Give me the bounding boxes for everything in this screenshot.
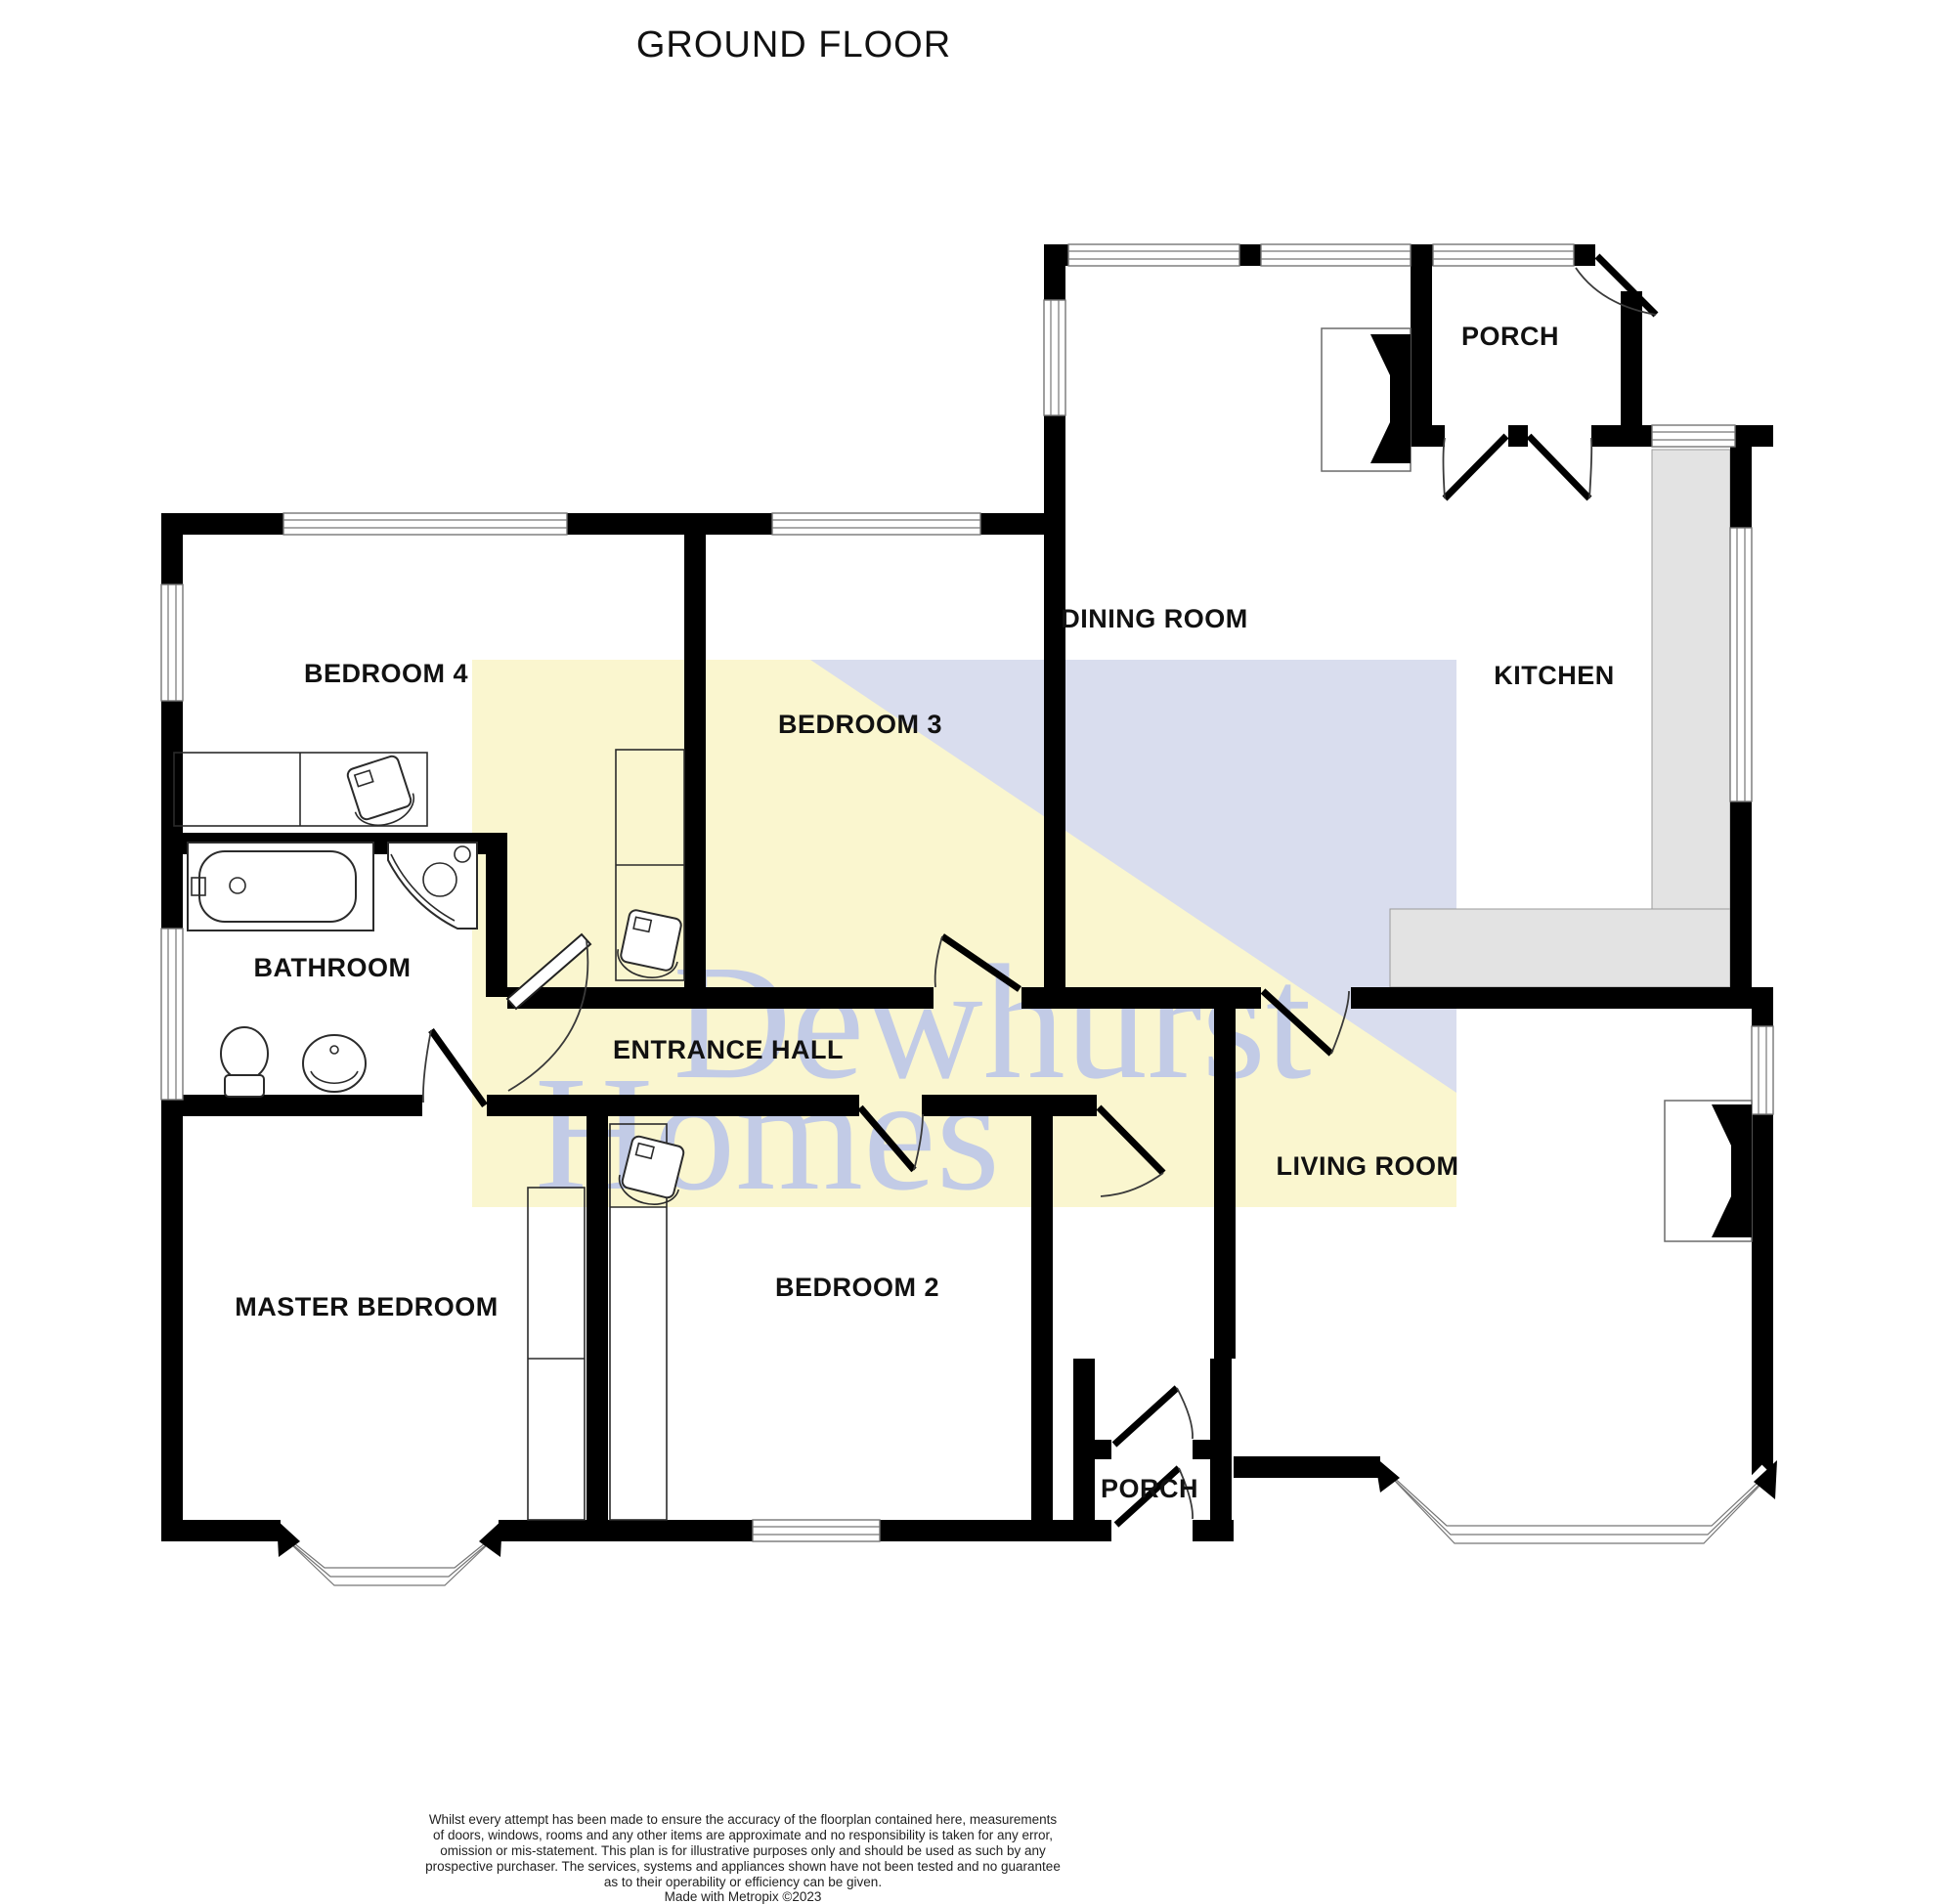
window xyxy=(161,584,183,701)
disclaimer-line: of doors, windows, rooms and any other i… xyxy=(433,1828,1053,1842)
bathtub xyxy=(188,843,373,930)
disclaimer-line: Made with Metropix ©2023 xyxy=(665,1889,822,1904)
bay-window-living xyxy=(1374,1456,1777,1543)
page-title: GROUND FLOOR xyxy=(636,24,951,65)
window xyxy=(1730,528,1752,801)
bay-window-master xyxy=(277,1520,502,1585)
toilet xyxy=(221,1027,268,1097)
room-label-bedroom3: BEDROOM 3 xyxy=(778,710,942,739)
fireplace-living xyxy=(1665,1101,1752,1241)
disclaimer-line: as to their operability or efficiency ca… xyxy=(604,1875,882,1889)
room-label-bedroom4: BEDROOM 4 xyxy=(304,659,468,688)
room-label-dining: DINING ROOM xyxy=(1061,604,1248,633)
room-label-master: MASTER BEDROOM xyxy=(235,1292,499,1321)
window xyxy=(1261,244,1411,266)
room-label-living: LIVING ROOM xyxy=(1277,1151,1459,1181)
window xyxy=(283,513,567,535)
desk-chair xyxy=(342,754,419,833)
corner-shower xyxy=(388,843,477,929)
window xyxy=(772,513,980,535)
window xyxy=(1068,244,1239,266)
room-label-bedroom2: BEDROOM 2 xyxy=(775,1273,939,1302)
window xyxy=(161,929,183,1100)
disclaimer-line: omission or mis-statement. This plan is … xyxy=(440,1843,1046,1858)
window xyxy=(1433,244,1574,266)
wardrobe-master xyxy=(528,1188,585,1520)
door-porch-bottom-inner xyxy=(1114,1388,1193,1445)
disclaimer: Whilst every attempt has been made to en… xyxy=(425,1812,1061,1904)
door-porch-to-kitchen xyxy=(1529,436,1591,498)
window xyxy=(753,1520,880,1541)
door-porch-to-dining xyxy=(1444,436,1507,498)
room-label-bathroom: BATHROOM xyxy=(254,953,412,982)
window xyxy=(1652,425,1735,447)
room-label-porch-top: PORCH xyxy=(1461,322,1559,351)
watermark-logo: Dewhurst Homes xyxy=(472,660,1456,1225)
room-label-porch-bottom: PORCH xyxy=(1101,1474,1198,1503)
room-label-hall: ENTRANCE HALL xyxy=(613,1035,844,1064)
disclaimer-line: Whilst every attempt has been made to en… xyxy=(429,1812,1058,1827)
disclaimer-line: prospective purchaser. The services, sys… xyxy=(425,1859,1061,1874)
floorplan-page: Dewhurst Homes xyxy=(0,0,1955,1904)
fireplace-dining xyxy=(1322,328,1411,471)
window xyxy=(1752,1026,1773,1114)
room-label-kitchen: KITCHEN xyxy=(1494,661,1615,690)
window xyxy=(1044,300,1065,415)
floorplan-canvas: Dewhurst Homes xyxy=(0,0,1955,1904)
sink xyxy=(303,1035,366,1092)
